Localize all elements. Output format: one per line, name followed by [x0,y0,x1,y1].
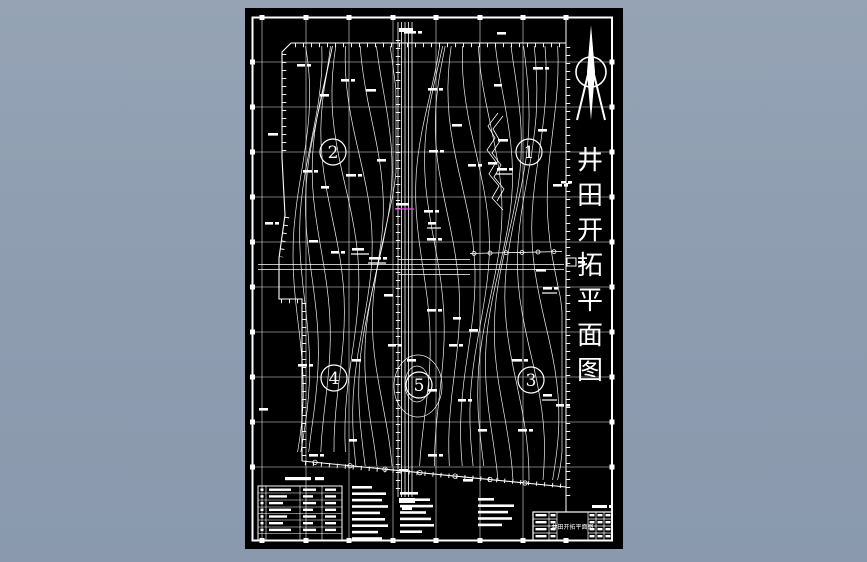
side-title-char-1: 井 [577,146,603,176]
side-title-char-5: 平 [577,286,603,316]
station-label: 5 [414,376,425,396]
drawing-frame [253,18,613,541]
side-title-char-3: 开 [577,216,603,246]
shaft-lines [398,22,415,510]
notes-text-blocks [352,486,514,540]
side-title: 井 田 开 拓 平 面 图 [577,146,603,386]
legend-table [258,477,342,540]
station-label: 3 [526,371,537,391]
station-label: 2 [328,143,339,163]
title-block-drawing-name: 井田开拓平面图 [551,523,593,531]
side-title-char-2: 田 [577,181,603,211]
north-arrow-icon [576,25,606,120]
side-title-char-7: 图 [577,356,603,386]
desktop-background: 1 2 3 4 5 井 田 [0,0,867,562]
station-circle-4: 4 [321,365,347,391]
station-label: 1 [524,143,535,163]
mine-plan-drawing: 1 2 3 4 5 井 田 [245,8,623,549]
side-title-char-4: 拓 [577,251,603,281]
side-title-char-6: 面 [577,321,603,351]
station-circle-3: 3 [518,367,544,393]
title-block: 井田开拓平面图 [533,505,613,541]
roadway-lines [258,250,585,275]
station-label: 4 [329,369,340,389]
cad-drawing-canvas: 1 2 3 4 5 井 田 [245,8,623,549]
